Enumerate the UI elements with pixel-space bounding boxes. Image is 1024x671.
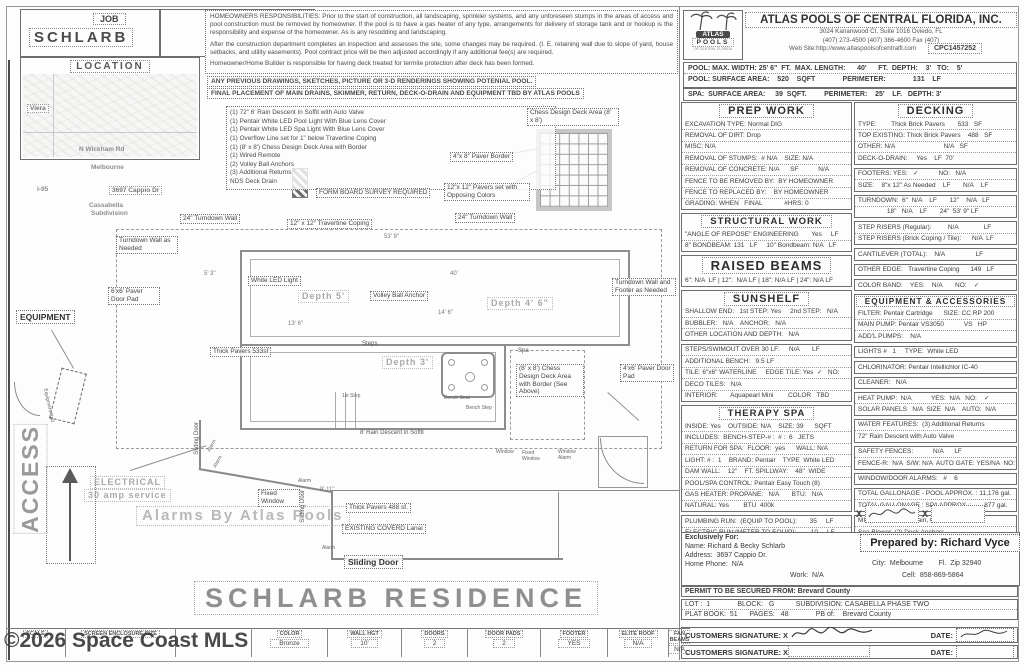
drawing-label: 3697 Cappio Dr [109, 186, 162, 195]
spec-row: DECK-O-DRAIN: Yes LF 70' [855, 152, 1016, 163]
note-previous-drawings: ANY PREVIOUS DRAWINGS, SKETCHES, PICTURE… [207, 76, 536, 87]
strip-cell-value: 2 [424, 639, 446, 648]
spec-row: FENCE TO BE REMOVED BY: BY HOMEOWNER [682, 175, 851, 186]
spec-row: CLEANER: N/A [855, 378, 1016, 388]
column-divider [679, 6, 680, 660]
spa-spec-row: SPA: SURFACE AREA: 39 SQFT. PERIMETER: 2… [684, 89, 1016, 99]
date-label: DATE: [931, 631, 953, 640]
buyer-signature-box-2[interactable] [931, 505, 985, 523]
strip-cell: WALL HGT10' [328, 629, 402, 657]
spec-row: ADD'L PUMPS: N/A [855, 330, 1016, 341]
pool-spec-row: POOL: SURFACE AREA: 520 SQFT PERIMETER: … [684, 73, 1016, 84]
spa-jet [448, 384, 455, 391]
section-title: SUNSHELF [724, 292, 809, 306]
customer-signature-area[interactable] [788, 645, 870, 657]
spec-row: GRADING: WHEN FINAL #HRS: 0 [682, 198, 851, 209]
strip-cell: COLORBronze [252, 629, 328, 657]
signature-scribble [788, 627, 878, 641]
map-road [53, 74, 54, 157]
spec-row: NDS Deck Drain [230, 178, 552, 187]
section-title: DECKING [898, 104, 974, 118]
section-water-features: WATER FEATURES: (3) Additional Returns72… [854, 419, 1017, 443]
spec-row: FENCE-R: N/A S/W: N/A AUTO GATE: YES/NA … [855, 457, 1016, 468]
location-map: VieraN Wickham RdMelbourneI-953697 Cappi… [23, 74, 197, 157]
section-cleaner: CLEANER: N/A [854, 377, 1017, 389]
date-scribble [957, 629, 1011, 640]
spec-row: MAIN PUMP: Pentair VS3050 VS HP [855, 319, 1016, 330]
spec-row: CANTILEVER (TOTAL): N/A LF [855, 249, 1016, 259]
section-footers: FOOTERS: YES: ✓ NO: N/ASIZE: 8"x 12" As … [854, 168, 1017, 192]
pool-step-line [355, 392, 356, 428]
section-step-risers: STEP RISERS (Regular): N/A LFSTEP RISERS… [854, 221, 1017, 245]
right-column-left: PREP WORK EXCAVATION TYPE: Normal DIGREM… [681, 102, 852, 572]
spec-row: LIGHT: # : 1 BRAND: Pentair TYPE White L… [682, 454, 851, 465]
strip-cell-label: DOORS [421, 630, 447, 638]
spa-drain [465, 372, 475, 382]
section-prep-work: PREP WORK EXCAVATION TYPE: Normal DIGREM… [681, 102, 852, 210]
spec-row: EXCAVATION TYPE: Normal DIG [682, 119, 851, 129]
customer-address: Address: 3697 Cappio Dr. [682, 551, 1019, 560]
spec-row: SAFETY FENCES: N/A LF [855, 447, 1016, 457]
strip-cell-value: N/A [669, 645, 690, 654]
map-road [23, 132, 197, 133]
spec-row: ADDITIONAL BENCH: 9.5 LF [682, 355, 851, 366]
house-wall [331, 490, 333, 560]
strip-cell-value: 2 [493, 639, 515, 648]
date-label: DATE: [931, 648, 953, 657]
customer-signature-row-2: CUSTOMERS SIGNATURE: X DATE: [681, 645, 1018, 659]
spec-row: LIGHTS # 1 TYPE: White LED [855, 347, 1016, 357]
spec-row: REMOVAL OF STUMPS: # N/A SIZE: N/A [682, 152, 851, 163]
spec-row: TILE: 6"x6" WATERLINE EDGE TILE: Yes ✓ N… [682, 367, 851, 378]
spec-row: MISC: N/A [682, 141, 851, 152]
spec-row: TYPE: Thick Brick Pavers 533 SF [855, 119, 1016, 129]
buyer-signature-box[interactable] [865, 505, 919, 523]
drawing-label: Cassabella [89, 202, 123, 209]
responsibilities-paragraph: HOMEOWNERS RESPONSIBILITIES: Prior to th… [210, 13, 673, 38]
spec-row: 6": N/A LF | 12": N/A LF | 18": N/A LF |… [682, 275, 851, 285]
section-chlorinator: CHLORINATOR: Pentair Intellichlor IC-40 [854, 361, 1017, 373]
spec-row: FOOTERS: YES: ✓ NO: N/A [855, 169, 1016, 179]
section-structural-work: STRUCTURAL WORK "ANGLE OF REPOSE" ENGINE… [681, 213, 852, 252]
pool-waterline-deep [250, 259, 620, 337]
spec-row: (1) Pentair White LED Spa Light With Blu… [230, 126, 552, 135]
spec-row: DECO TILES: N/A [682, 378, 851, 389]
spec-row: (1) Pentair White LED Pool Light With Bl… [230, 118, 552, 127]
spec-row: COLOR BAND: YES: N/A NO: ✓ [855, 280, 1016, 290]
section-equipment-accessories: EQUIPMENT & ACCESSORIES FILTER: Pentair … [854, 294, 1017, 342]
spec-row: (1) Overflow Line set for 1" below Trave… [230, 135, 552, 144]
buyer-signature-row: X X [856, 505, 1018, 523]
strip-cell-label: FAN BEAMS [669, 630, 690, 644]
spec-row: DAM WALL: 12" FT. SPILLWAY: 48" WIDE [682, 466, 851, 477]
drawing-label: Viera [27, 104, 49, 113]
responsibilities-box: HOMEOWNERS RESPONSIBILITIES: Prior to th… [205, 10, 678, 74]
section-window-door-alarms: WINDOW/DOOR ALARMS: # 6 [854, 473, 1017, 485]
section-heat-pump: HEAT PUMP: N/A YES: N/A NO: ✓SOLAR PANEL… [854, 392, 1017, 416]
right-column-right: DECKING TYPE: Thick Brick Pavers 533 SFT… [854, 102, 1017, 542]
strip-cell-label: ELITE ROOF [619, 630, 658, 638]
job-name: SCHLARB [29, 28, 133, 47]
spec-row: (1) 72" 6' Rain Descent In Soffit with A… [230, 109, 552, 118]
spec-row: 18" N/A LF 24" 53' 9" LF [855, 206, 1016, 217]
strip-cell: DOOR PADS2 [468, 629, 541, 657]
drawing-label: I-95 [37, 186, 48, 193]
spec-row: INCLUDES: BENCH-STEP-# : # : 6 JETS [682, 431, 851, 442]
signature-x: X [856, 509, 862, 519]
house-wall [331, 490, 679, 491]
strip-cell: DOORS2 [402, 629, 468, 657]
section-other-edge: OTHER EDGE: Travertine Coping 149 LF [854, 264, 1017, 276]
date-box[interactable] [956, 628, 1014, 642]
logo-text-atlas: ATLAS [696, 31, 729, 38]
license-number: CPC1457252 [928, 43, 982, 54]
spec-row: PLUMBING RUN: (EQUIP TO POOL): 35 LF [682, 516, 851, 526]
spec-row: FENCE TO REPLACED BY: BY HOMEOWNER [682, 187, 851, 198]
customer-signature-row-1: CUSTOMERS SIGNATURE: X DATE: [681, 627, 1018, 643]
section-safety-fences: SAFETY FENCES: N/A LFFENCE-R: N/A S/W: N… [854, 446, 1017, 470]
spec-row: STEP RISERS (Regular): N/A LF [855, 222, 1016, 232]
spec-row: 72" Rain Descent with Auto Valve [855, 430, 1016, 441]
spec-row: (3) Additional Returns [230, 169, 552, 178]
spa-specs-box: SPA: SURFACE AREA: 39 SQFT. PERIMETER: 2… [683, 88, 1017, 101]
section-decking: DECKING TYPE: Thick Brick Pavers 533 SFT… [854, 102, 1017, 165]
spec-row: OTHER LOCATION AND DEPTH: N/A [682, 328, 851, 339]
pool-specs-box: POOL: MAX. WIDTH: 25' 6" FT. MAX. LENGTH… [683, 62, 1017, 88]
location-title: LOCATION [70, 60, 149, 73]
plat-row: PLAT BOOK: 51 PAGES: 48 PB of: Brevard C… [682, 609, 1017, 619]
access-arrow-head [62, 468, 78, 483]
section-raised-beams: RAISED BEAMS 6": N/A LF | 12": N/A LF | … [681, 255, 852, 286]
spec-row: REMOVAL OF CONCRETE: N/A SF N/A [682, 164, 851, 175]
spec-row: STEPS/SWIMOUT OVER 30 LF: N/A LF [682, 345, 851, 355]
logo-subtext: OF CENTRAL FLORIDA [694, 47, 732, 51]
section-cantilever: CANTILEVER (TOTAL): N/A LF [854, 248, 1017, 260]
company-address: 3024 Kananwood Ct. Suite 1016 Oviedo, FL [745, 28, 1017, 37]
spec-row: (1) (8' x 8') Chess Design Deck Area wit… [230, 144, 552, 153]
signature-scribble [866, 506, 918, 522]
drawing-label: N Wickham Rd [79, 146, 124, 153]
note-final-placement: FINAL PLACEMENT OF MAIN DRAINS, SKIMMER,… [207, 88, 584, 99]
property-line [8, 60, 10, 660]
spec-row: FILTER: Pentair Cartridge SIZE: CC RP 20… [855, 308, 1016, 318]
atlas-pools-logo: ATLAS POOLS OF CENTRAL FLORIDA [683, 10, 743, 60]
customer-cell: Cell: 858-869-5864 [902, 572, 964, 579]
customer-signature-label: CUSTOMERS SIGNATURE: X [685, 648, 788, 657]
strip-cell: FAN BEAMSN/A [669, 629, 690, 657]
responsibilities-paragraph: After the construction department comple… [210, 41, 673, 57]
strip-cell-value: Bronze [270, 639, 309, 648]
strip-cell-label: COLOR [277, 630, 303, 638]
chess-deck-site [510, 350, 585, 440]
spec-row: STEP RISERS (Brick Coping / Tile): N/A L… [855, 233, 1016, 244]
section-title: STRUCTURAL WORK [701, 215, 831, 228]
section-pool-misc: STEPS/SWIMOUT OVER 30 LF: N/A LFADDITION… [681, 344, 852, 402]
section-title: RAISED BEAMS [702, 257, 832, 274]
lot-row: LOT : 1 BLOCK: G SUBDIVISION: CASABELLA … [682, 600, 1017, 609]
spec-row: TOP EXISTING: Thick Brick Pavers 488 SF [855, 129, 1016, 140]
lot-plat-box: LOT : 1 BLOCK: G SUBDIVISION: CASABELLA … [681, 599, 1018, 620]
section-sunshelf: SUNSHELF SHALLOW END: 1st STEP: Yes 2nd … [681, 290, 852, 341]
spec-row: HEAT PUMP: N/A YES: N/A NO: ✓ [855, 393, 1016, 403]
access-arrow-line [69, 483, 71, 561]
spec-row: BUBBLER: N/A ANCHOR: N/A [682, 317, 851, 328]
spec-row: REMOVAL OF DIRT: Drop [682, 129, 851, 140]
house-wall [199, 420, 201, 470]
spec-row: TURNDOWN: 6" N/A LF 12" N/A LF [855, 196, 1016, 206]
customer-signature-label: CUSTOMERS SIGNATURE: X [685, 631, 788, 640]
spec-row: SHALLOW END: 1st STEP: Yes 2nd STEP: N/A [682, 307, 851, 317]
section-title: THERAPY SPA [719, 407, 815, 420]
spa-jet [448, 359, 455, 366]
spec-row: INSIDE: Yes OUTSIDE: N/A SIZE: 39 SQFT [682, 421, 851, 431]
spec-row: INTERIOR: Aquapearl Mini COLOR TBD [682, 390, 851, 401]
spec-row: OTHER EDGE: Travertine Coping 149 LF [855, 265, 1016, 275]
spec-row: SIZE: 8"x 12" As Needed LF N/A LF [855, 179, 1016, 190]
section-color-band: COLOR BAND: YES: N/A NO: ✓ [854, 279, 1017, 291]
spec-row: (2) Volley Ball Anchors [230, 161, 552, 170]
strip-cell: FOOTERYES [541, 629, 608, 657]
section-lights: LIGHTS # 1 TYPE: White LED [854, 346, 1017, 358]
pool-step-line [335, 392, 336, 428]
spec-row: RETURN FOR SPA: FLOOR: yes WALL: N/A [682, 443, 851, 454]
spec-row: SOLAR PANELS N/A SIZE N/A AUTO: N/A [855, 403, 1016, 414]
mls-watermark: ©2026 Space Coast MLS [4, 629, 248, 653]
strip-cell-label: WALL HGT [347, 630, 382, 638]
section-turndown: TURNDOWN: 6" N/A LF 12" N/A LF 18" N/A L… [854, 195, 1017, 219]
palm-trees-icon [686, 11, 740, 31]
spec-row: CHLORINATOR: Pentair Intellichlor IC-40 [855, 362, 1016, 372]
signature-x: X [922, 509, 928, 519]
spec-row: (1) Wired Remote [230, 152, 552, 161]
drawing-label: Melbourne [91, 164, 124, 171]
job-box-1: JOB SCHLARB [20, 9, 160, 57]
spa-outline [441, 352, 495, 398]
strip-cell: ELITE ROOFN/A [608, 629, 669, 657]
drawing-label: Subdivision [91, 210, 128, 217]
section-therapy-spa: THERAPY SPA INSIDE: Yes OUTSIDE: N/A SIZ… [681, 405, 852, 512]
house-wall [331, 558, 563, 560]
spec-row: TOTAL GALLONAGE - POOL APPROX. : 11,176 … [855, 489, 1016, 499]
spec-row: WINDOW/DOOR ALARMS: # 6 [855, 474, 1016, 484]
customer-work-phone: Work: N/A [790, 572, 824, 579]
responsibilities-paragraph: Homeowner/Home Builder is responsible fo… [210, 60, 673, 68]
strip-cell-label: DOOR PADS [485, 630, 524, 638]
strip-cell-value: YES [558, 639, 589, 648]
pool-spec-row: POOL: MAX. WIDTH: 25' 6" FT. MAX. LENGTH… [684, 63, 1016, 73]
spec-row: WATER FEATURES: (3) Additional Returns [855, 420, 1016, 430]
blueprint-sheet: JOB SCHLARB JOB LOCATION VieraN Wickham … [0, 0, 1024, 671]
strip-cell-value: N/A [624, 639, 653, 648]
prepared-by: Prepared by: Richard Vyce [860, 534, 1020, 552]
section-title: PREP WORK [719, 104, 814, 118]
spec-row: "ANGLE OF REPOSE" ENGINEERING Yes LF [682, 229, 851, 239]
spa-jet [481, 384, 488, 391]
job-label: JOB [93, 13, 126, 25]
section-title: EQUIPMENT & ACCESSORIES [856, 296, 1015, 307]
spec-row: OTHER: N/A N/A SF [855, 141, 1016, 152]
permit-row: PERMIT TO BE SECURED FROM: Brevard Count… [681, 586, 1018, 597]
company-name: ATLAS POOLS OF CENTRAL FLORIDA, INC. [745, 12, 1017, 28]
strip-cell-value: 10' [351, 639, 377, 648]
house-wall [558, 492, 559, 558]
date-box[interactable] [956, 645, 1014, 659]
spec-row: GAS HEATER: PROPANE: N/A BTU: N/A [682, 489, 851, 500]
location-map-box: LOCATION VieraN Wickham RdMelbourneI-953… [20, 57, 200, 160]
spec-row: NATURAL: Yes BTU 400k [682, 500, 851, 511]
customer-signature-area[interactable] [788, 627, 931, 643]
strip-cell-label: FOOTER [560, 630, 589, 638]
customer-city: City: Melbourne Fl. Zip 32940 [872, 560, 981, 567]
spa-jet [481, 359, 488, 366]
logo-text-pools: POOLS [692, 38, 735, 47]
spec-row: 8" BONDBEAM: 131 LF 10" Bondbeam: N/A LF [682, 240, 851, 251]
spec-row: POOL/SPA CONTROL: Pentair Easy Touch (8) [682, 477, 851, 488]
drawing-notes: (1) 72" 6' Rain Descent In Soffit with A… [226, 106, 556, 190]
pool-step-line [345, 392, 346, 428]
